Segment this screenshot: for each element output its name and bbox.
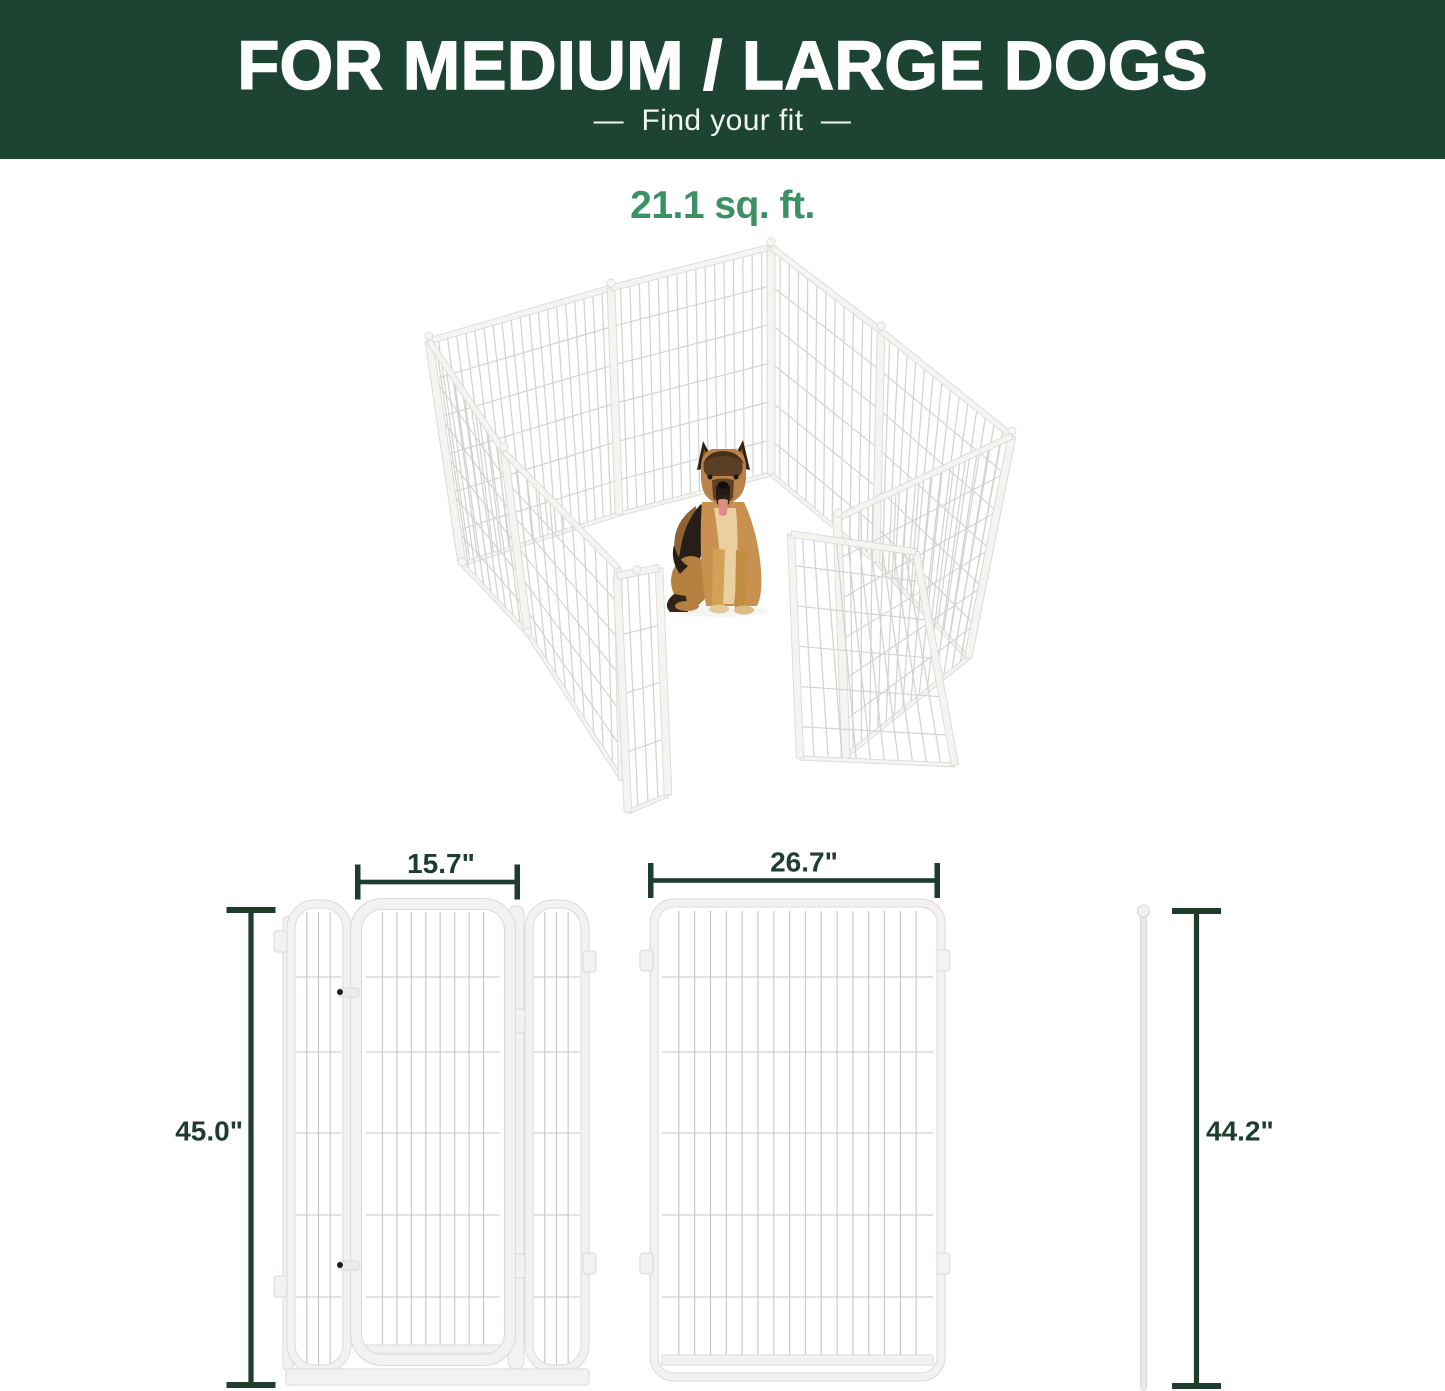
svg-text:26.7": 26.7" [770, 847, 838, 878]
svg-text:44.2": 44.2" [1206, 1116, 1274, 1147]
svg-text:15.7": 15.7" [407, 848, 475, 879]
svg-text:45.0": 45.0" [175, 1116, 243, 1147]
